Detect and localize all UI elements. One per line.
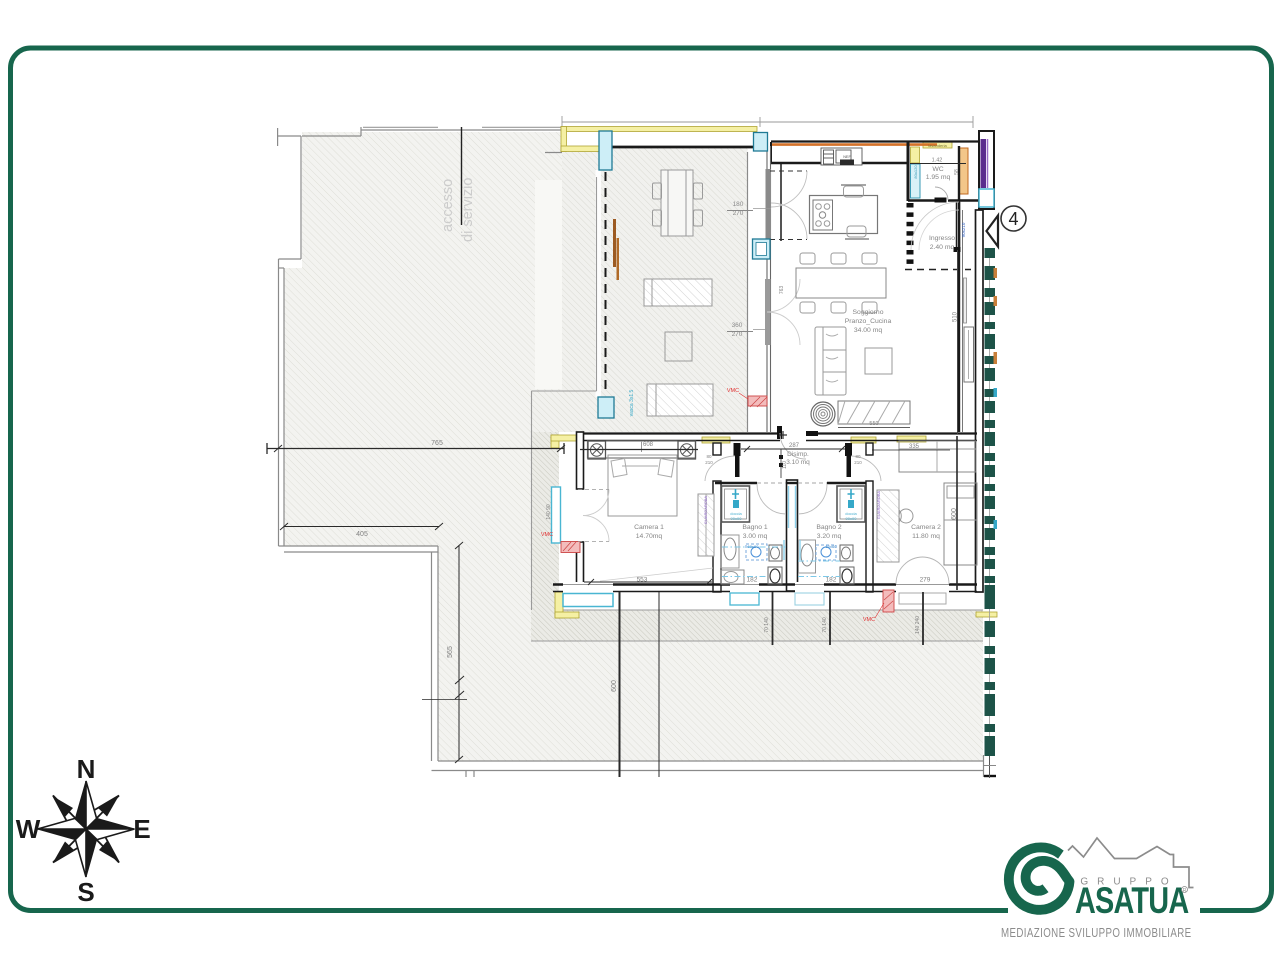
svg-text:80x120: 80x120: [913, 165, 918, 179]
svg-text:S: S: [77, 877, 94, 907]
svg-text:550: 550: [869, 421, 878, 427]
svg-text:90x90: 90x90: [731, 516, 743, 521]
svg-text:14.70mq: 14.70mq: [636, 533, 663, 540]
svg-text:608: 608: [643, 442, 654, 448]
svg-text:Camera 2: Camera 2: [911, 524, 941, 531]
svg-text:Disimp.: Disimp.: [787, 451, 809, 458]
svg-text:553: 553: [637, 577, 648, 584]
svg-text:11.80 mq: 11.80 mq: [912, 533, 940, 540]
svg-text:GUARDAROBA: GUARDAROBA: [876, 490, 881, 519]
svg-text:70 140: 70 140: [822, 617, 828, 633]
svg-text:270: 270: [732, 331, 743, 338]
svg-text:90x90: 90x90: [846, 516, 858, 521]
svg-text:335: 335: [909, 444, 920, 450]
svg-text:210: 210: [854, 460, 862, 465]
svg-text:60x60: 60x60: [826, 544, 838, 549]
svg-text:VMC: VMC: [863, 617, 875, 623]
svg-text:279: 279: [920, 577, 931, 584]
svg-text:WC: WC: [932, 166, 943, 173]
svg-text:90x210: 90x210: [961, 222, 966, 237]
svg-text:E: E: [133, 814, 150, 844]
svg-text:765: 765: [431, 440, 443, 447]
svg-text:NEF: NEF: [843, 155, 851, 159]
svg-text:3.00 mq: 3.00 mq: [743, 533, 768, 540]
svg-text:4: 4: [1008, 209, 1018, 229]
svg-text:GUARDAROBA: GUARDAROBA: [703, 495, 708, 524]
svg-text:182: 182: [747, 577, 758, 584]
svg-text:Soggiorno: Soggiorno: [853, 309, 884, 316]
svg-text:140 90: 140 90: [546, 504, 552, 520]
svg-text:182: 182: [826, 577, 837, 584]
svg-text:60x60: 60x60: [748, 544, 760, 549]
svg-text:287: 287: [789, 443, 800, 449]
svg-text:VMC: VMC: [541, 532, 553, 538]
svg-text:360: 360: [732, 322, 743, 329]
svg-text:3.10 mq: 3.10 mq: [786, 459, 810, 466]
svg-text:vasca 3x1.5: vasca 3x1.5: [629, 389, 635, 416]
svg-text:Bagno 2: Bagno 2: [816, 524, 842, 531]
svg-text:80: 80: [706, 454, 712, 459]
svg-text:140 240: 140 240: [915, 616, 921, 634]
svg-text:lavanderia: lavanderia: [928, 143, 947, 148]
svg-text:R: R: [1183, 888, 1187, 894]
svg-text:di servizio: di servizio: [460, 178, 476, 242]
svg-text:70 140: 70 140: [764, 617, 770, 633]
svg-text:accesso: accesso: [440, 179, 456, 232]
svg-text:1.42: 1.42: [932, 158, 943, 164]
svg-text:180: 180: [733, 201, 744, 208]
svg-text:Bagno 1: Bagno 1: [742, 524, 768, 531]
svg-text:58: 58: [954, 169, 960, 175]
svg-text:763: 763: [779, 286, 785, 295]
svg-text:405: 405: [356, 531, 368, 538]
svg-text:80: 80: [855, 454, 861, 459]
svg-text:MEDIAZIONE SVILUPPO IMMOBILIAR: MEDIAZIONE SVILUPPO IMMOBILIARE: [1001, 927, 1192, 940]
svg-text:2.40 mq: 2.40 mq: [930, 244, 955, 251]
svg-text:Ingresso: Ingresso: [929, 235, 955, 242]
svg-text:Camera 1: Camera 1: [634, 524, 664, 531]
svg-text:34.00 mq: 34.00 mq: [854, 327, 883, 334]
svg-text:N: N: [77, 754, 96, 784]
svg-text:VMC: VMC: [727, 388, 739, 394]
svg-text:600: 600: [611, 680, 618, 692]
svg-text:270: 270: [733, 210, 744, 217]
svg-text:210: 210: [705, 460, 713, 465]
svg-text:1.95 mq: 1.95 mq: [926, 174, 951, 181]
svg-text:W: W: [16, 814, 41, 844]
svg-text:Pranzo_Cucina: Pranzo_Cucina: [845, 318, 892, 325]
svg-text:3.20 mq: 3.20 mq: [817, 533, 842, 540]
svg-text:ASATUA: ASATUA: [1075, 881, 1189, 922]
svg-text:565: 565: [447, 646, 454, 658]
